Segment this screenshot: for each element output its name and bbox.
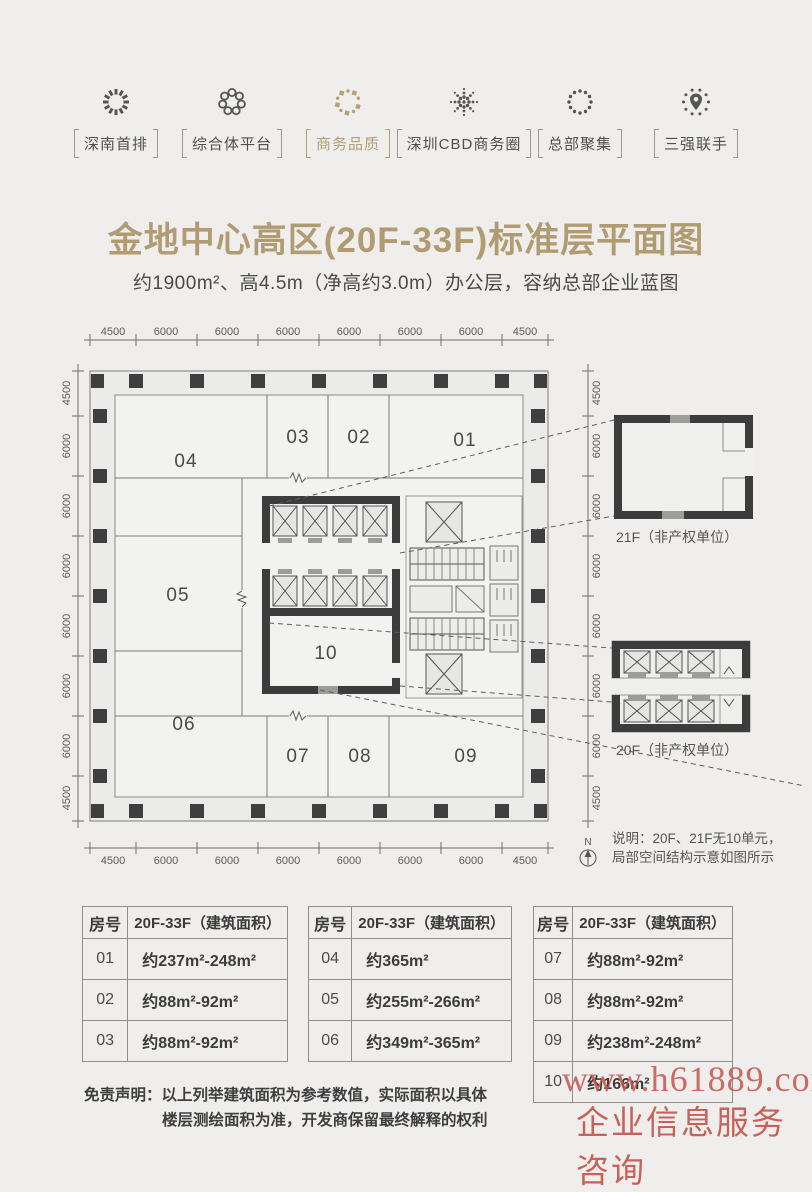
disclaimer-line1: 免责声明：以上列举建筑面积为参考数值，实际面积以具体 xyxy=(84,1083,534,1108)
room-area: 约88m²-92m² xyxy=(128,980,288,1021)
room-label-05: 05 xyxy=(166,585,189,606)
room-no: 07 xyxy=(534,939,573,980)
svg-text:4500: 4500 xyxy=(591,786,603,810)
table-header-area: 20F-33F（建筑面积） xyxy=(573,907,733,939)
svg-text:6000: 6000 xyxy=(337,855,361,867)
nav-item-complex-platform[interactable]: 综合体平台 xyxy=(182,76,282,158)
room-area: 约365m² xyxy=(352,939,512,980)
table-header-area: 20F-33F（建筑面积） xyxy=(128,907,288,939)
table-row: 07 约88m²-92m² xyxy=(534,939,733,980)
detail-21f xyxy=(614,415,753,519)
bracket-right xyxy=(733,129,738,158)
nav-item-cbd-circle[interactable]: 深圳CBD商务圈 xyxy=(414,76,514,158)
bracket-left xyxy=(397,129,402,158)
table-row: 01 约237m²-248m² xyxy=(83,939,288,980)
svg-text:6000: 6000 xyxy=(61,554,73,578)
svg-text:6000: 6000 xyxy=(459,855,483,867)
snowflake-dots-icon xyxy=(446,76,482,120)
table-row: 09 约238m²-248m² xyxy=(534,1021,733,1062)
disclaimer-label: 免责声明： xyxy=(84,1087,162,1104)
floor-plan: 45006000 60006000 60006000 60004500 4500… xyxy=(60,318,812,890)
nav-item-business-quality[interactable]: 商务品质 xyxy=(298,76,398,158)
disclaimer-line2: 楼层测绘面积为准，开发商保留最终解释的权利 xyxy=(84,1108,534,1133)
bracket-right xyxy=(617,129,622,158)
svg-text:4500: 4500 xyxy=(61,786,73,810)
feature-nav: 深南首排 综合体平台 商务品质 xyxy=(0,76,812,158)
area-table-2: 房号 20F-33F（建筑面积） 04 约365m² 05 约255m²-266… xyxy=(308,906,512,1062)
room-area: 约88m²-92m² xyxy=(573,980,733,1021)
table-row: 04 约365m² xyxy=(309,939,512,980)
area-table-1: 房号 20F-33F（建筑面积） 01 约237m²-248m² 02 约88m… xyxy=(82,906,288,1062)
watermark-caption: 企业信息服务咨询 xyxy=(576,1096,812,1192)
nav-label: 三强联手 xyxy=(664,133,728,154)
room-no: 06 xyxy=(309,1021,352,1062)
room-no: 09 xyxy=(534,1021,573,1062)
table-row: 06 约349m²-365m² xyxy=(309,1021,512,1062)
room-label-08: 08 xyxy=(348,746,371,767)
svg-text:6000: 6000 xyxy=(276,326,300,338)
bracket-right xyxy=(385,129,390,158)
nav-label: 综合体平台 xyxy=(192,133,272,154)
svg-text:4500: 4500 xyxy=(61,381,73,405)
table-header-room: 房号 xyxy=(309,907,352,939)
room-label-09: 09 xyxy=(454,746,477,767)
table-row: 02 约88m²-92m² xyxy=(83,980,288,1021)
dotted-ring-icon xyxy=(562,76,598,120)
svg-text:6000: 6000 xyxy=(591,434,603,458)
room-area: 约238m²-248m² xyxy=(573,1021,733,1062)
nav-item-shennan-front-row[interactable]: 深南首排 xyxy=(66,76,166,158)
svg-text:6000: 6000 xyxy=(591,734,603,758)
svg-text:6000: 6000 xyxy=(591,494,603,518)
room-area: 约255m²-266m² xyxy=(352,980,512,1021)
nav-label: 深圳CBD商务圈 xyxy=(407,133,522,154)
location-pin-icon xyxy=(678,76,714,120)
detail-21f-label: 21F（非产权单位） xyxy=(616,529,738,545)
svg-text:6000: 6000 xyxy=(61,614,73,638)
table-header-room: 房号 xyxy=(534,907,573,939)
svg-text:6000: 6000 xyxy=(215,326,239,338)
room-no: 05 xyxy=(309,980,352,1021)
nav-item-hq-gathering[interactable]: 总部聚集 xyxy=(530,76,630,158)
svg-text:6000: 6000 xyxy=(61,494,73,518)
detail-20f-upper xyxy=(612,641,750,678)
svg-text:6000: 6000 xyxy=(154,855,178,867)
nav-label: 总部聚集 xyxy=(548,133,612,154)
svg-text:4500: 4500 xyxy=(591,381,603,405)
room-label-01: 01 xyxy=(453,430,476,451)
bracket-left xyxy=(538,129,543,158)
room-label-10: 10 xyxy=(314,643,337,664)
room-no: 01 xyxy=(83,939,128,980)
svg-text:4500: 4500 xyxy=(513,855,537,867)
detail-20f-lower xyxy=(612,695,750,732)
bracket-left xyxy=(182,129,187,158)
gold-wreath-icon xyxy=(330,76,366,120)
nav-label: 深南首排 xyxy=(84,133,148,154)
room-no: 04 xyxy=(309,939,352,980)
bracket-right xyxy=(277,129,282,158)
table-row: 03 约88m²-92m² xyxy=(83,1021,288,1062)
svg-text:6000: 6000 xyxy=(337,326,361,338)
detail-20f-label: 20F（非产权单位） xyxy=(616,742,738,758)
svg-text:局部空间结构示意如图所示: 局部空间结构示意如图所示 xyxy=(612,849,774,865)
room-area: 约88m²-92m² xyxy=(573,939,733,980)
table-row: 08 约88m²-92m² xyxy=(534,980,733,1021)
watermark-url: www.h61889.com xyxy=(562,1058,812,1100)
bracket-left xyxy=(306,129,311,158)
svg-text:4500: 4500 xyxy=(513,326,537,338)
table-row: 05 约255m²-266m² xyxy=(309,980,512,1021)
north-arrow-icon: N xyxy=(580,837,596,866)
room-label-02: 02 xyxy=(347,427,370,448)
svg-text:N: N xyxy=(584,837,591,848)
bracket-left xyxy=(654,129,659,158)
table-header-room: 房号 xyxy=(83,907,128,939)
svg-text:6000: 6000 xyxy=(591,614,603,638)
svg-text:6000: 6000 xyxy=(61,434,73,458)
room-area: 约349m²-365m² xyxy=(352,1021,512,1062)
room-label-06: 06 xyxy=(172,714,195,735)
room-no: 02 xyxy=(83,980,128,1021)
svg-text:说明：20F、21F无10单元，: 说明：20F、21F无10单元， xyxy=(612,831,782,846)
svg-text:6000: 6000 xyxy=(459,326,483,338)
svg-text:6000: 6000 xyxy=(398,326,422,338)
nav-item-three-strong-alliance[interactable]: 三强联手 xyxy=(646,76,746,158)
svg-text:6000: 6000 xyxy=(591,674,603,698)
svg-text:6000: 6000 xyxy=(215,855,239,867)
room-no: 03 xyxy=(83,1021,128,1062)
page-title: 金地中心高区(20F-33F)标准层平面图 xyxy=(0,212,812,263)
svg-text:6000: 6000 xyxy=(276,855,300,867)
room-area: 约237m²-248m² xyxy=(128,939,288,980)
room-label-03: 03 xyxy=(286,427,309,448)
bracket-left xyxy=(74,129,79,158)
nav-label: 商务品质 xyxy=(316,133,380,154)
svg-text:4500: 4500 xyxy=(101,326,125,338)
room-area: 约88m²-92m² xyxy=(128,1021,288,1062)
room-label-07: 07 xyxy=(286,746,309,767)
table-header-area: 20F-33F（建筑面积） xyxy=(352,907,512,939)
bracket-right xyxy=(153,129,158,158)
svg-text:4500: 4500 xyxy=(101,855,125,867)
room-label-04: 04 xyxy=(174,451,197,472)
plan-note: 说明：20F、21F无10单元， 局部空间结构示意如图所示 xyxy=(612,831,782,865)
svg-text:6000: 6000 xyxy=(61,734,73,758)
svg-text:6000: 6000 xyxy=(61,674,73,698)
page: { "page": {"bg": "#efeeec", "accent": "#… xyxy=(0,0,812,1155)
room-no: 08 xyxy=(534,980,573,1021)
sunburst-icon xyxy=(98,76,134,120)
svg-text:6000: 6000 xyxy=(154,326,178,338)
page-subtitle: 约1900m²、高4.5m（净高约3.0m）办公层，容纳总部企业蓝图 xyxy=(0,268,812,295)
circle-ring-icon xyxy=(214,76,250,120)
disclaimer: 免责声明：以上列举建筑面积为参考数值，实际面积以具体 楼层测绘面积为准，开发商保… xyxy=(84,1083,534,1133)
svg-text:6000: 6000 xyxy=(398,855,422,867)
svg-text:6000: 6000 xyxy=(591,554,603,578)
